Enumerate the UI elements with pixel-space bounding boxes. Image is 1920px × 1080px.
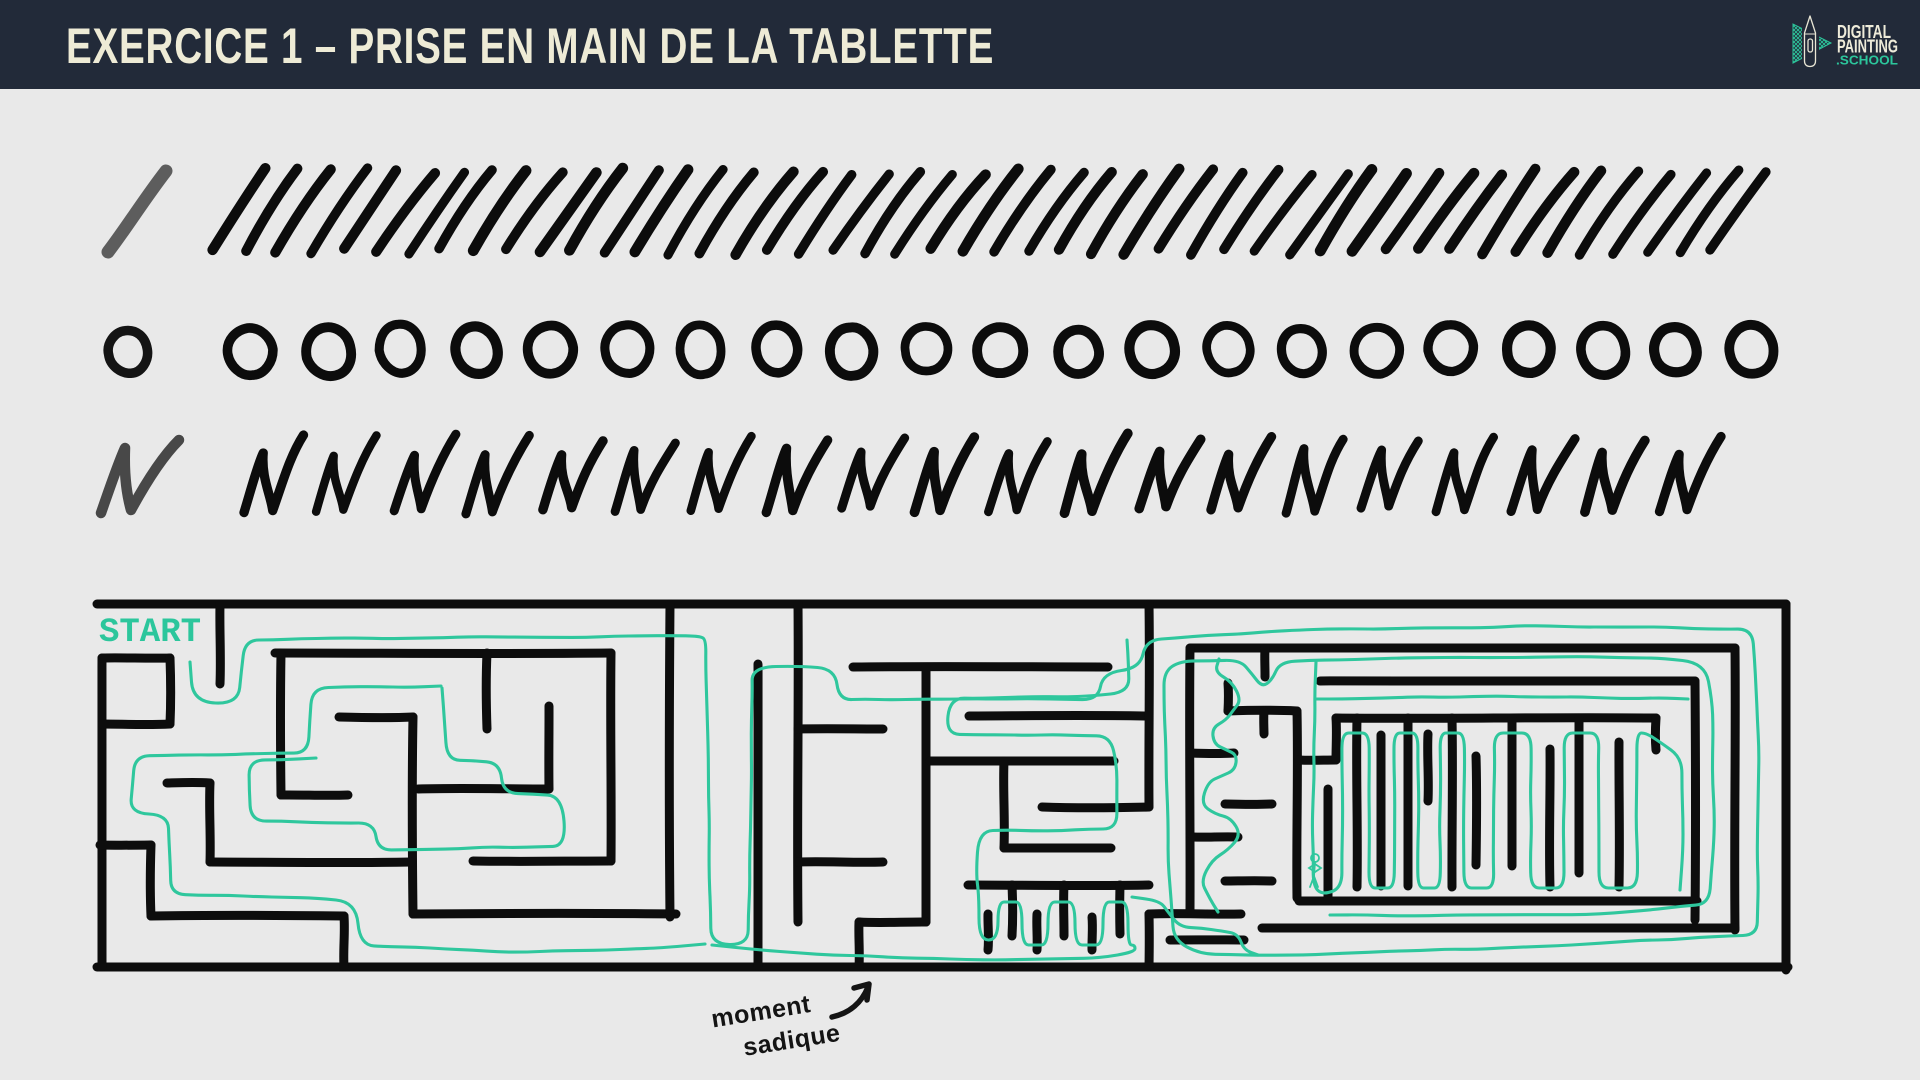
svg-text:START: START [99,614,201,652]
svg-text:.SCHOOL: .SCHOOL [1836,54,1898,68]
